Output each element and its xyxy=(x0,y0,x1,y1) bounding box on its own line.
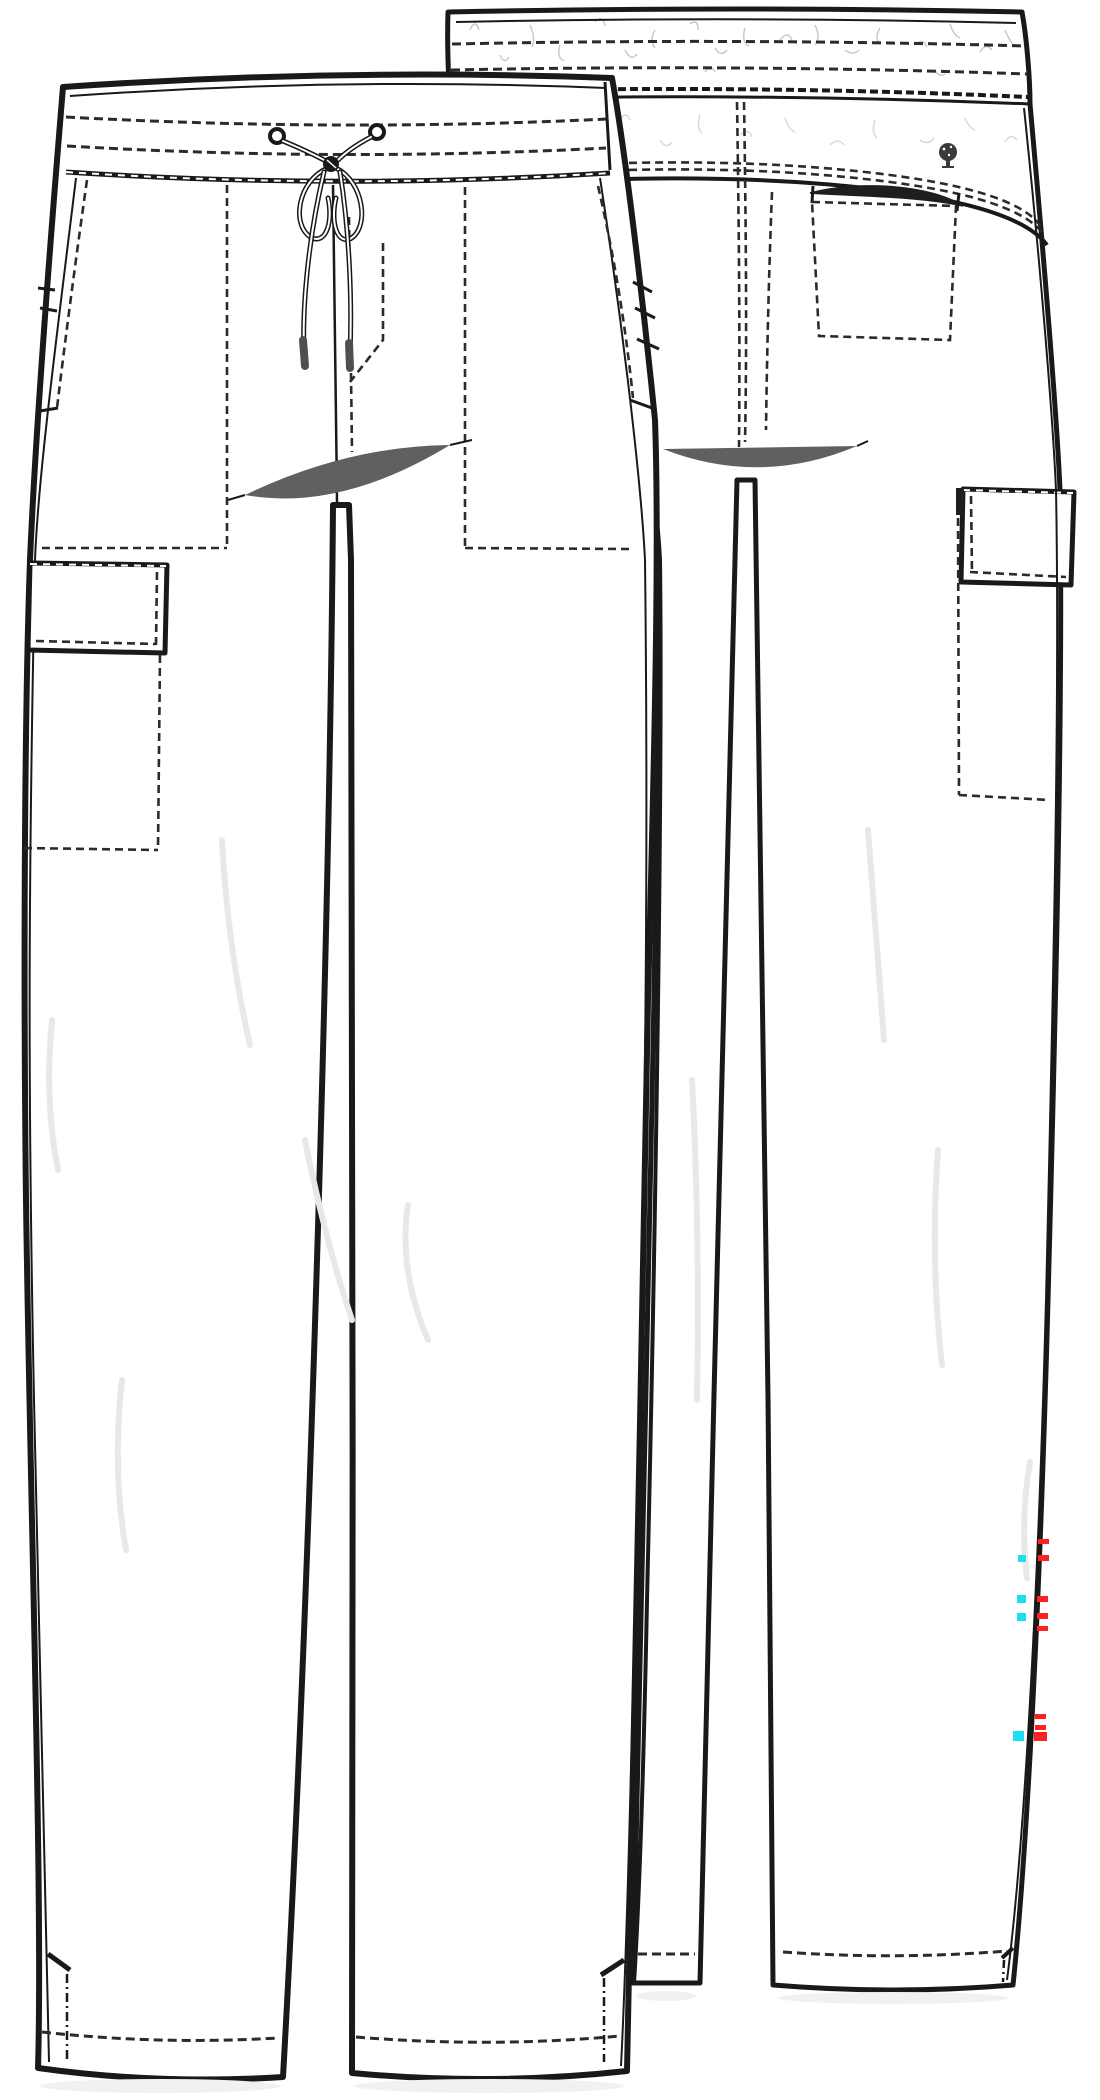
front-hem-shadow-left xyxy=(40,2079,280,2093)
front-silhouette xyxy=(25,75,657,2080)
annotation-mark xyxy=(1035,1725,1046,1730)
cargo-pocket xyxy=(28,563,167,653)
front-hem-shadow-right xyxy=(355,2079,625,2093)
back-cargo-side-tab xyxy=(956,488,964,515)
pants-flat-sketch xyxy=(0,0,1100,2100)
annotation-mark xyxy=(1017,1595,1026,1603)
right-cord-tip xyxy=(349,343,350,368)
annotation-mark xyxy=(1034,1732,1047,1741)
annotation-mark xyxy=(1037,1596,1048,1602)
technical-flat-canvas xyxy=(0,0,1100,2100)
annotation-mark xyxy=(1013,1731,1024,1741)
back-welt-tick-left xyxy=(812,186,813,203)
back-welt-tick-right xyxy=(957,193,959,211)
annotation-mark xyxy=(1037,1626,1048,1631)
annotation-mark xyxy=(1037,1613,1048,1619)
annotation-mark xyxy=(1017,1613,1026,1621)
annotation-mark xyxy=(1018,1555,1026,1562)
left-cord-tip xyxy=(303,340,305,366)
annotation-mark xyxy=(1038,1555,1049,1561)
annotation-mark xyxy=(1035,1714,1046,1719)
front-pants-view xyxy=(24,75,659,2093)
back-hem-shadow-left xyxy=(636,1991,696,2001)
annotation-mark xyxy=(1038,1539,1049,1544)
back-hem-shadow-right xyxy=(778,1992,1008,2004)
